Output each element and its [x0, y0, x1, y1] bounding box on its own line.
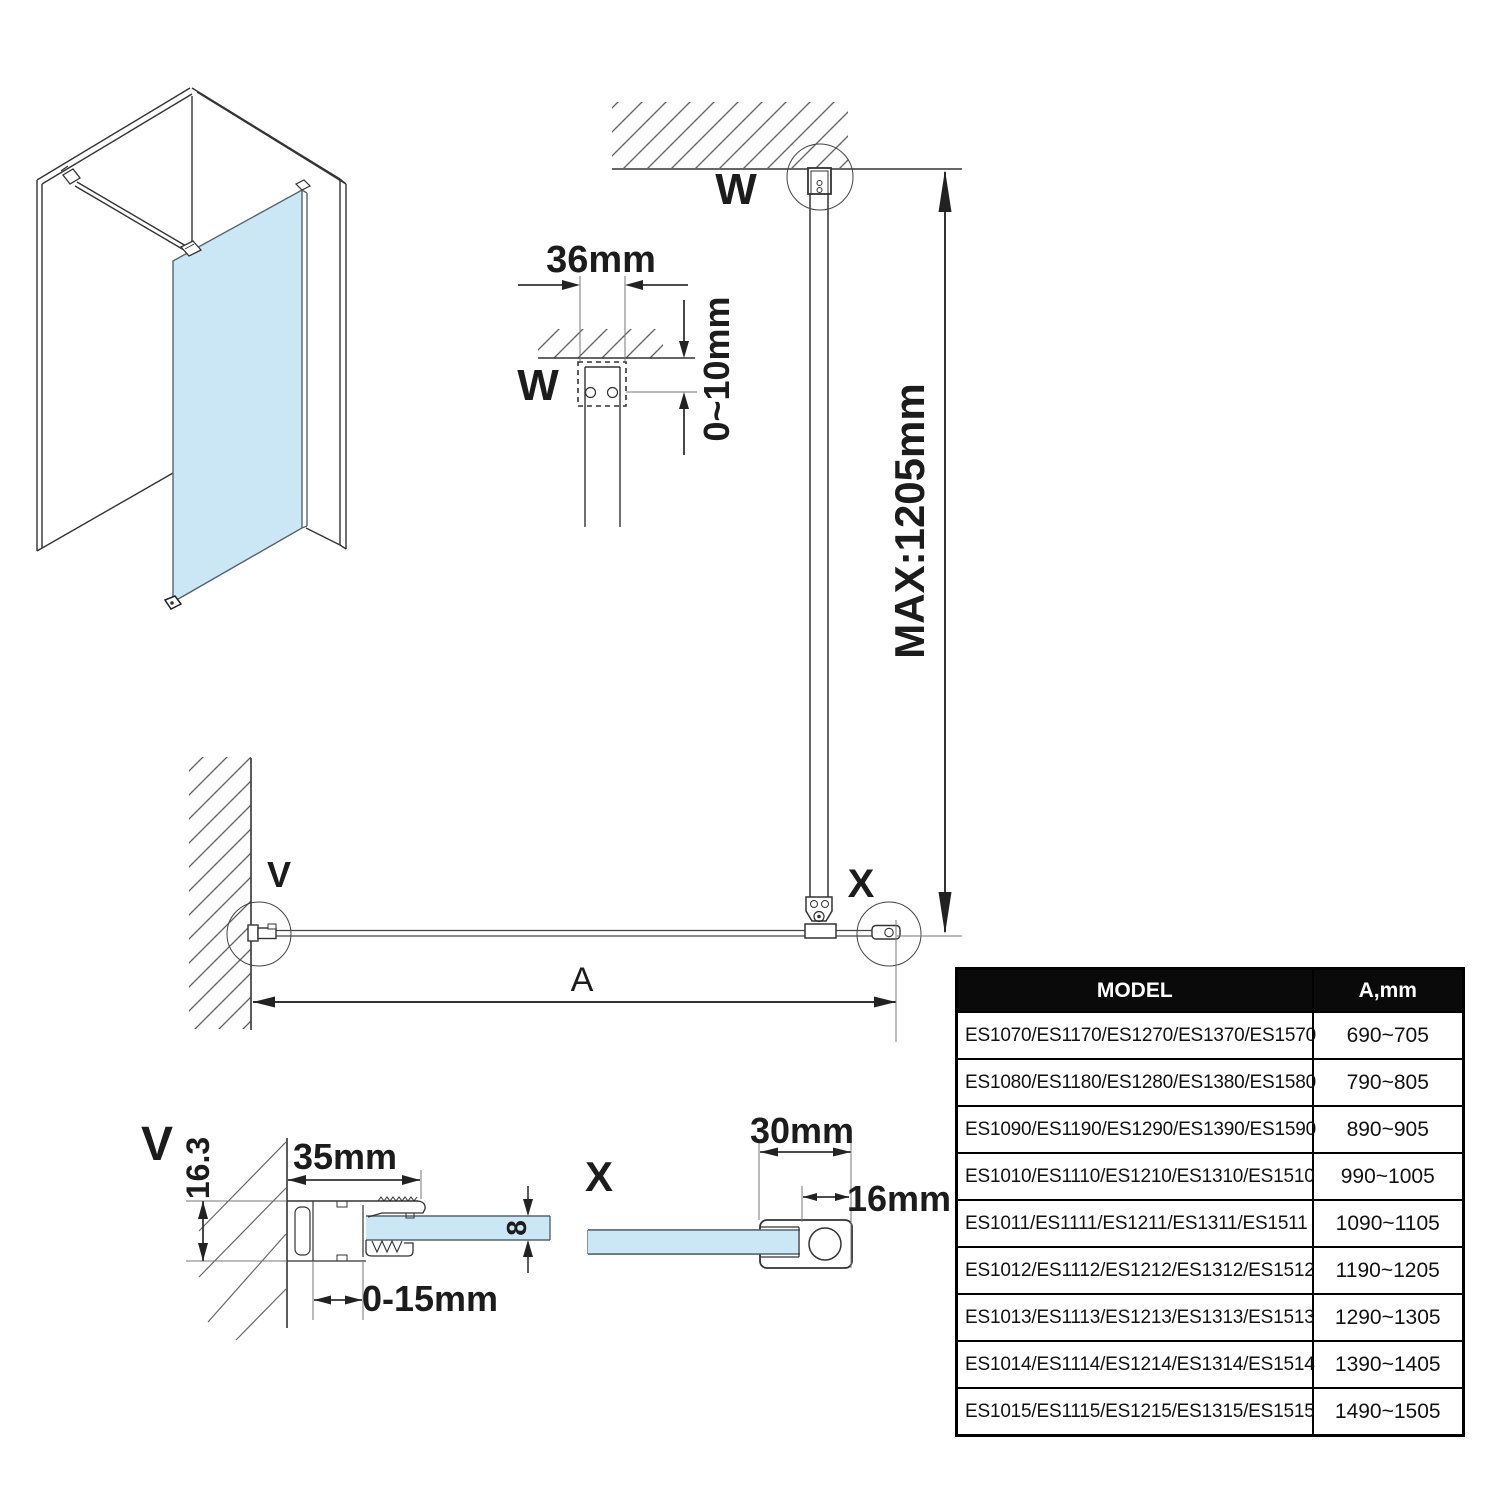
label-x-detail: X — [585, 1156, 613, 1198]
model-cell: ES1013/ES1113/ES1213/ES1313/ES1513 — [957, 1294, 1313, 1341]
dim-text-36mm: 36mm — [546, 241, 656, 279]
dim-text-8: 8 — [503, 1220, 531, 1236]
glass-panel-plan — [276, 931, 872, 937]
label-w-main: W — [715, 168, 757, 212]
a-mm-cell: 1190~1205 — [1313, 1247, 1464, 1294]
table-row: ES1011/ES1111/ES1211/ES1311/ES15111090~1… — [957, 1200, 1464, 1247]
table-row: ES1015/ES1115/ES1215/ES1315/ES15151490~1… — [957, 1388, 1464, 1436]
bar-glass-holder — [805, 924, 836, 938]
a-mm-cell: 690~705 — [1313, 1012, 1464, 1059]
dim-text-0-15mm: 0-15mm — [362, 1281, 498, 1317]
dimension-0-15mm — [313, 1262, 363, 1320]
left-wall — [37, 88, 192, 551]
label-v-detail: V — [141, 1121, 173, 1169]
a-mm-cell: 1490~1505 — [1313, 1388, 1464, 1436]
table-row: ES1010/ES1110/ES1210/ES1310/ES1510990~10… — [957, 1153, 1464, 1200]
model-cell: ES1070/ES1170/ES1270/ES1370/ES1570 — [957, 1012, 1313, 1059]
label-w-detail: W — [517, 364, 559, 408]
a-mm-cell: 990~1005 — [1313, 1153, 1464, 1200]
wall-profile-plan — [248, 924, 276, 941]
isometric-view — [37, 88, 346, 609]
table-row: ES1070/ES1170/ES1270/ES1370/ES1570690~70… — [957, 1012, 1464, 1059]
dim-text-35mm: 35mm — [293, 1139, 397, 1175]
model-cell: ES1090/ES1190/ES1290/ES1390/ES1590 — [957, 1106, 1313, 1153]
table-row: ES1012/ES1112/ES1212/ES1312/ES15121190~1… — [957, 1247, 1464, 1294]
table-header-row: MODEL A,mm — [957, 969, 1464, 1013]
support-bar-elevation — [805, 168, 836, 938]
model-cell: ES1080/ES1180/ES1280/ES1380/ES1580 — [957, 1059, 1313, 1106]
model-cell: ES1011/ES1111/ES1211/ES1311/ES1511 — [957, 1200, 1313, 1247]
foot-profile-section — [588, 1220, 852, 1268]
table-header-model: MODEL — [957, 969, 1313, 1013]
a-mm-cell: 890~905 — [1313, 1106, 1464, 1153]
a-mm-cell: 1290~1305 — [1313, 1294, 1464, 1341]
dim-text-max-1205mm: MAX:1205mm — [889, 383, 931, 658]
table-row: ES1090/ES1190/ES1290/ES1390/ES1590890~90… — [957, 1106, 1464, 1153]
model-cell: ES1015/ES1115/ES1215/ES1315/ES1515 — [957, 1388, 1313, 1436]
dim-text-30mm: 30mm — [750, 1113, 854, 1149]
ceiling-hatch — [612, 102, 848, 168]
dim-text-0-10mm: 0~10mm — [699, 296, 735, 441]
table-row: ES1014/ES1114/ES1214/ES1314/ES15141390~1… — [957, 1341, 1464, 1388]
label-v-main: V — [267, 857, 291, 893]
seal-spring — [372, 1241, 402, 1252]
x-detail-view — [588, 1142, 852, 1268]
wall-hatch — [189, 757, 251, 1029]
a-mm-cell: 1090~1105 — [1313, 1200, 1464, 1247]
table-header-a-mm: A,mm — [1313, 969, 1464, 1013]
dim-text-16-3: 16.3 — [182, 1137, 214, 1199]
label-a: A — [571, 963, 594, 997]
label-x-main: X — [848, 864, 875, 904]
dim-text-16mm: 16mm — [847, 1181, 951, 1217]
model-cell: ES1014/ES1114/ES1214/ES1314/ES1514 — [957, 1341, 1313, 1388]
a-mm-cell: 790~805 — [1313, 1059, 1464, 1106]
table-row: ES1080/ES1180/ES1280/ES1380/ES1580790~80… — [957, 1059, 1464, 1106]
support-bar-iso — [61, 166, 201, 256]
a-mm-cell: 1390~1405 — [1313, 1341, 1464, 1388]
dimension-0-10mm — [679, 300, 689, 455]
model-cell: ES1012/ES1112/ES1212/ES1312/ES1512 — [957, 1247, 1313, 1294]
model-cell: ES1010/ES1110/ES1210/ES1310/ES1510 — [957, 1153, 1313, 1200]
model-size-table: MODEL A,mm ES1070/ES1170/ES1270/ES1370/E… — [955, 967, 1465, 1437]
dimension-16mm — [802, 1186, 849, 1222]
dimension-16-3 — [186, 1201, 287, 1261]
installation-diagram-page: W W V V X X A 36mm 0~10mm MAX:1205mm 16.… — [0, 0, 1500, 1500]
wall-profile-top-bracket — [296, 180, 310, 190]
table-row: ES1013/ES1113/ES1213/ES1313/ES15131290~1… — [957, 1294, 1464, 1341]
w-detail-ceiling-hatch — [538, 329, 663, 358]
